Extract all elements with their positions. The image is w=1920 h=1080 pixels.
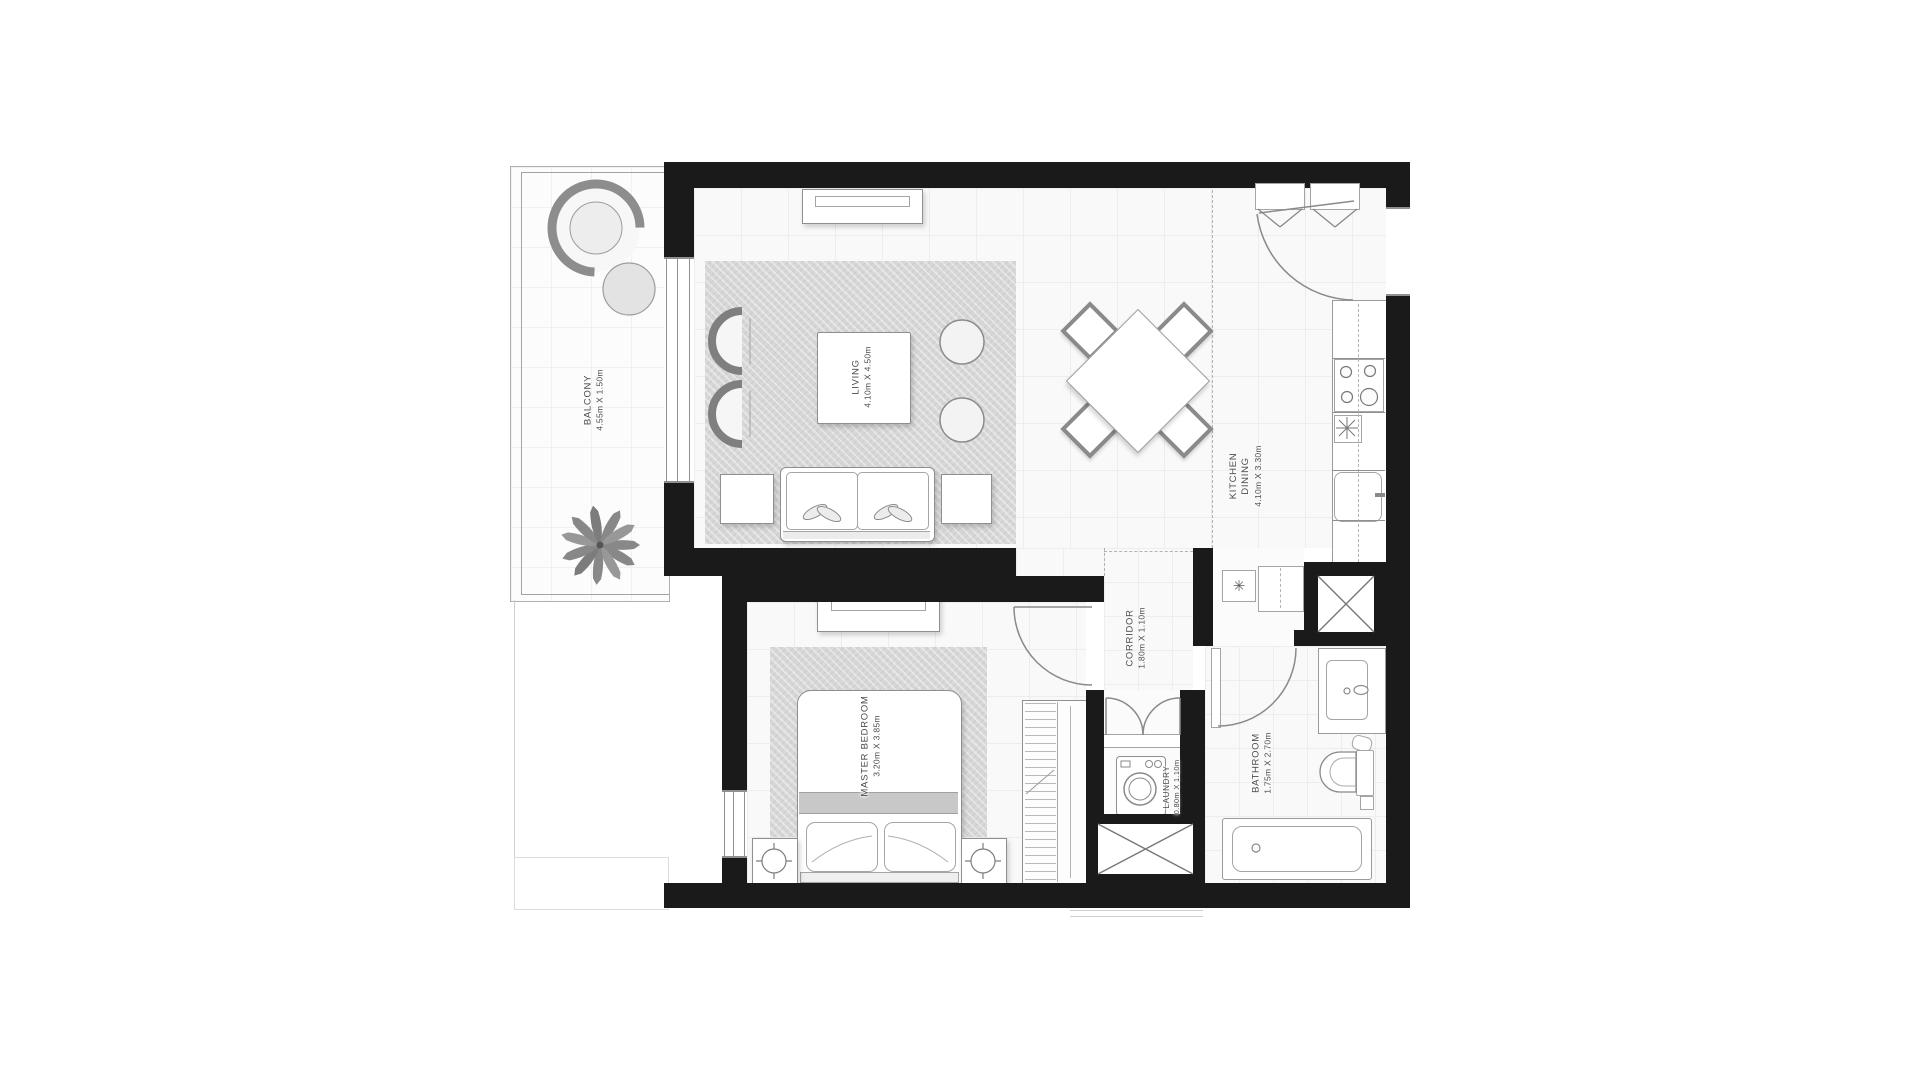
nightstand-left	[752, 838, 798, 886]
living-window-pane	[677, 259, 678, 481]
bedroom-window-pane	[733, 792, 734, 856]
sofa-cushion-left	[786, 472, 858, 530]
bedroom-window-pane	[744, 792, 745, 856]
laundry-dims: 0.80m X 1.10m	[1172, 760, 1182, 815]
bathroom-label: BATHROOM 1.75m X 2.70m	[1250, 732, 1273, 794]
kitchen-label: KITCHEN DINING 4.10m X 3.30m	[1228, 445, 1264, 507]
bed-base	[800, 872, 959, 883]
balcony-dims: 4.55m X 1.50m	[595, 369, 606, 431]
living-name: LIVING	[850, 346, 862, 408]
entry-threshold	[1386, 207, 1410, 209]
wall-corridor-stub	[1193, 548, 1213, 646]
master-bedroom-dims: 3.20m X 3.85m	[872, 695, 883, 796]
wall-right	[1386, 296, 1410, 908]
entry-closet	[1310, 183, 1360, 210]
corridor-dims: 1.80m X 1.10m	[1137, 607, 1148, 669]
master-bedroom-name: MASTER BEDROOM	[859, 695, 871, 796]
counter-divider	[1333, 470, 1385, 471]
entry-threshold	[1386, 294, 1410, 296]
bedroom-window-sill	[722, 790, 747, 792]
bath-accessory	[1360, 796, 1374, 810]
counter-divider	[1333, 358, 1385, 359]
toilet-tank	[1356, 750, 1374, 796]
wardrobe-shelves	[1025, 703, 1056, 881]
wardrobe-divider	[1057, 702, 1058, 882]
entry-cabinet	[1258, 566, 1304, 612]
living-window-sill	[664, 481, 694, 483]
living-window-sill	[664, 257, 694, 259]
counter-divider	[1333, 412, 1385, 413]
wall-bedroom-left-upper	[722, 576, 747, 792]
service-shaft	[1098, 824, 1193, 874]
corridor-dashed-top	[1104, 551, 1193, 552]
living-label: LIVING 4.10m X 4.50m	[850, 346, 873, 408]
bathroom-dims: 1.75m X 2.70m	[1263, 732, 1274, 794]
bedroom-window-sill	[722, 856, 747, 858]
hob	[1334, 359, 1384, 412]
corridor-name: CORRIDOR	[1124, 607, 1136, 669]
building-outline-line	[514, 600, 515, 858]
wardrobe-rail	[1070, 706, 1071, 878]
building-outline-rect	[514, 857, 669, 910]
laundry-threshold	[1100, 734, 1186, 748]
utility-unit: ✳	[1222, 570, 1256, 602]
nightstand-right	[961, 838, 1007, 886]
counter-divider	[1333, 520, 1385, 521]
utility-symbol: ✳	[1233, 577, 1246, 595]
side-table-left	[720, 474, 774, 524]
pillow-right	[884, 822, 956, 872]
corridor-floor	[1104, 548, 1193, 690]
bathtub-inner	[1232, 826, 1362, 872]
tv-console-inner	[815, 196, 910, 207]
sofa-back-band	[783, 531, 930, 539]
wall-living-bottom	[664, 548, 1016, 576]
bathroom-door-leaf	[1211, 648, 1221, 728]
corridor-dashed-left	[1104, 548, 1105, 576]
living-window-pane	[689, 259, 690, 481]
wall-bottom	[664, 883, 1410, 908]
master-bedroom-label: MASTER BEDROOM 3.20m X 3.85m	[859, 695, 882, 796]
kitchen-dims: 4.10m X 3.30m	[1253, 445, 1264, 507]
floor-plan-canvas: ✳	[0, 0, 1920, 1080]
service-shaft	[1318, 576, 1374, 632]
bedroom-window-pane	[724, 792, 725, 856]
wall-right-stub	[1386, 188, 1410, 208]
living-window-pane	[666, 259, 667, 481]
entry-closet	[1255, 183, 1305, 210]
washing-machine	[1116, 756, 1166, 816]
living-dims: 4.10m X 4.50m	[863, 346, 874, 408]
wall-bedroom-top	[722, 576, 1104, 602]
vanity-sink	[1326, 660, 1368, 720]
corridor-label: CORRIDOR 1.80m X 1.10m	[1124, 607, 1147, 669]
passage-floor	[1016, 548, 1104, 578]
wall-laundry-right	[1180, 690, 1205, 820]
wall-laundry-left	[1086, 690, 1104, 820]
exterior-vent-lines	[1070, 910, 1203, 917]
laundry-name: LAUNDRY	[1162, 760, 1172, 815]
kitchen-name: KITCHEN	[1228, 445, 1240, 507]
sofa-cushion-right	[857, 472, 929, 530]
laundry-label: LAUNDRY 0.80m X 1.10m	[1162, 760, 1182, 815]
kitchen-zone-dashed-line	[1212, 190, 1213, 548]
entry-cabinet-centerline	[1280, 568, 1281, 608]
pillow-left	[806, 822, 878, 872]
balcony-name: BALCONY	[582, 369, 594, 431]
counter-centerline	[1358, 304, 1359, 562]
kitchen-name2: DINING	[1240, 445, 1252, 507]
bathroom-name: BATHROOM	[1250, 732, 1262, 794]
side-table-right	[941, 474, 992, 524]
wall-left-upper	[664, 162, 694, 259]
balcony-label: BALCONY 4.55m X 1.50m	[582, 369, 605, 431]
